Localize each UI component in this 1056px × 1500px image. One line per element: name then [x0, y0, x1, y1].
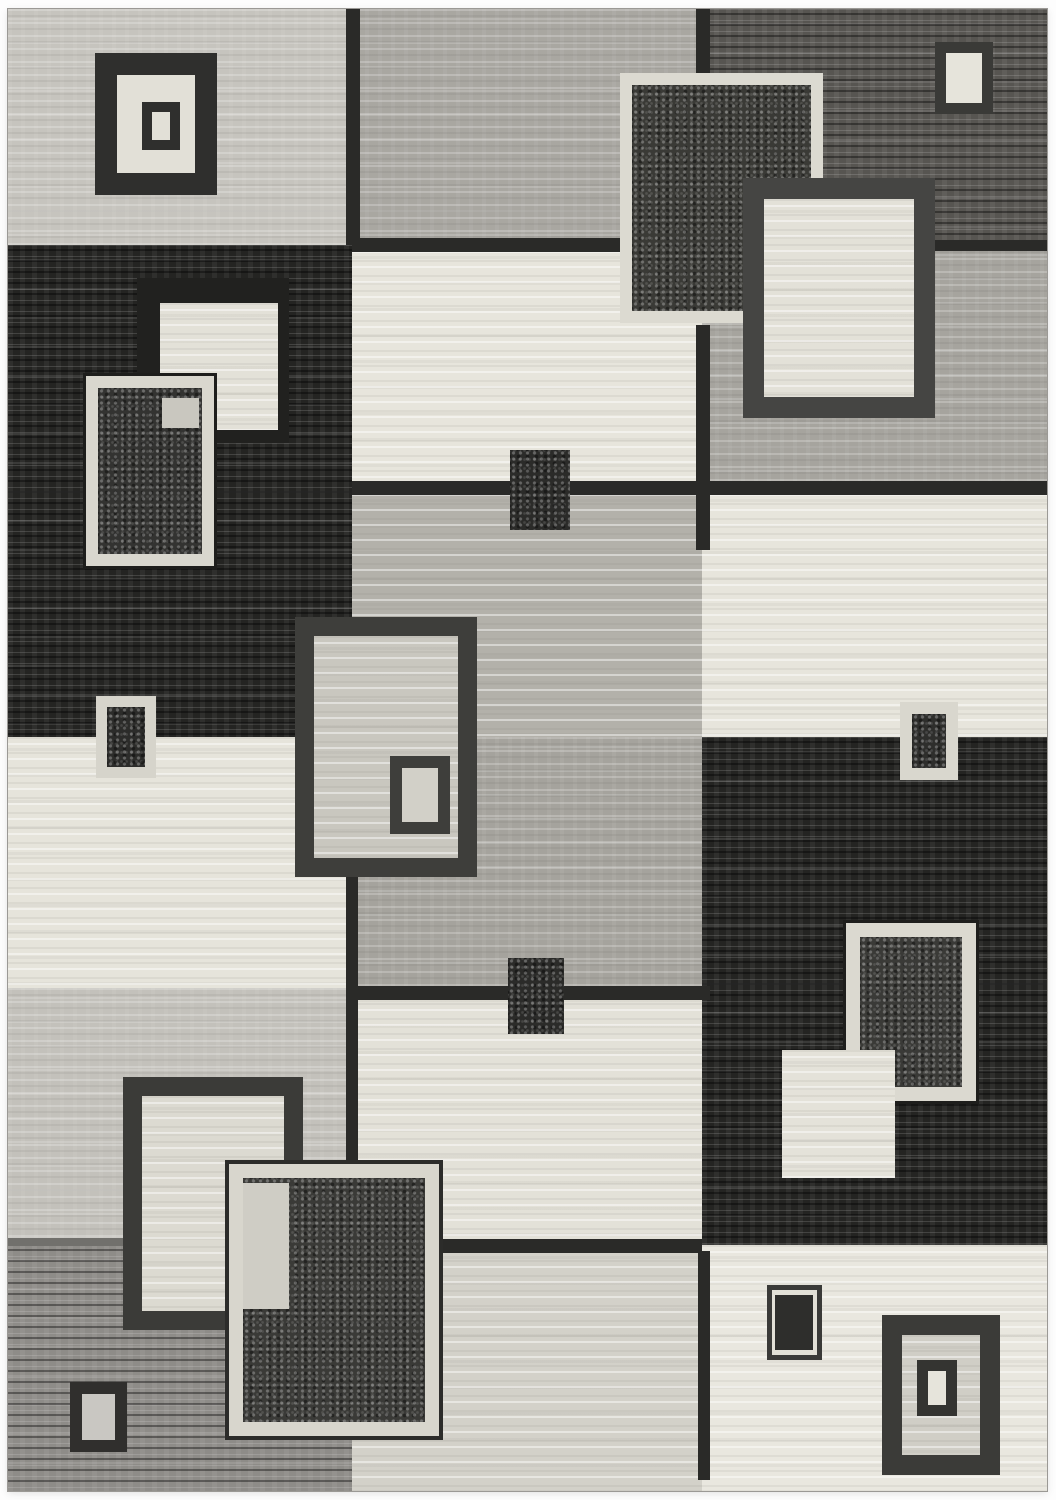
- motif-topleft-square-inner: [142, 102, 180, 150]
- divider-row1-middle: [352, 238, 622, 252]
- divider-mid-left-vertical: [346, 877, 358, 1165]
- divider-top-right-vertical: [696, 9, 710, 73]
- divider-row1-right: [935, 240, 1047, 251]
- motif-topright-small: [935, 42, 993, 114]
- motif-center-square-inner: [390, 756, 450, 834]
- block-right-cream: [702, 488, 1047, 737]
- motif-topright-cream-rect: [743, 178, 935, 418]
- divider-mid-right-vertical: [696, 325, 710, 550]
- motif-center-square: [295, 617, 477, 877]
- motif-leftblack-overlap-patch: [162, 398, 199, 428]
- page-background: [0, 0, 1056, 1500]
- rug-photo: [8, 9, 1047, 1491]
- divider-bottom-vertical: [698, 1251, 710, 1480]
- motif-bottomright-square-inner: [917, 1360, 957, 1416]
- motif-rightblack-cream-square: [782, 1050, 895, 1178]
- motif-bottomleft-overlap-patch: [243, 1183, 289, 1309]
- motif-left-small-square: [96, 696, 156, 778]
- motif-right-small-square: [900, 702, 958, 780]
- motif-bottomleft-corner-square: [70, 1382, 127, 1452]
- motif-bottomright-small-inner: [775, 1295, 813, 1350]
- divider-row4-horizontal: [440, 1239, 702, 1253]
- motif-middle-small-dark-upper: [510, 450, 570, 530]
- motif-middle-small-dark-lower: [508, 958, 564, 1034]
- divider-top-left-vertical: [346, 9, 360, 245]
